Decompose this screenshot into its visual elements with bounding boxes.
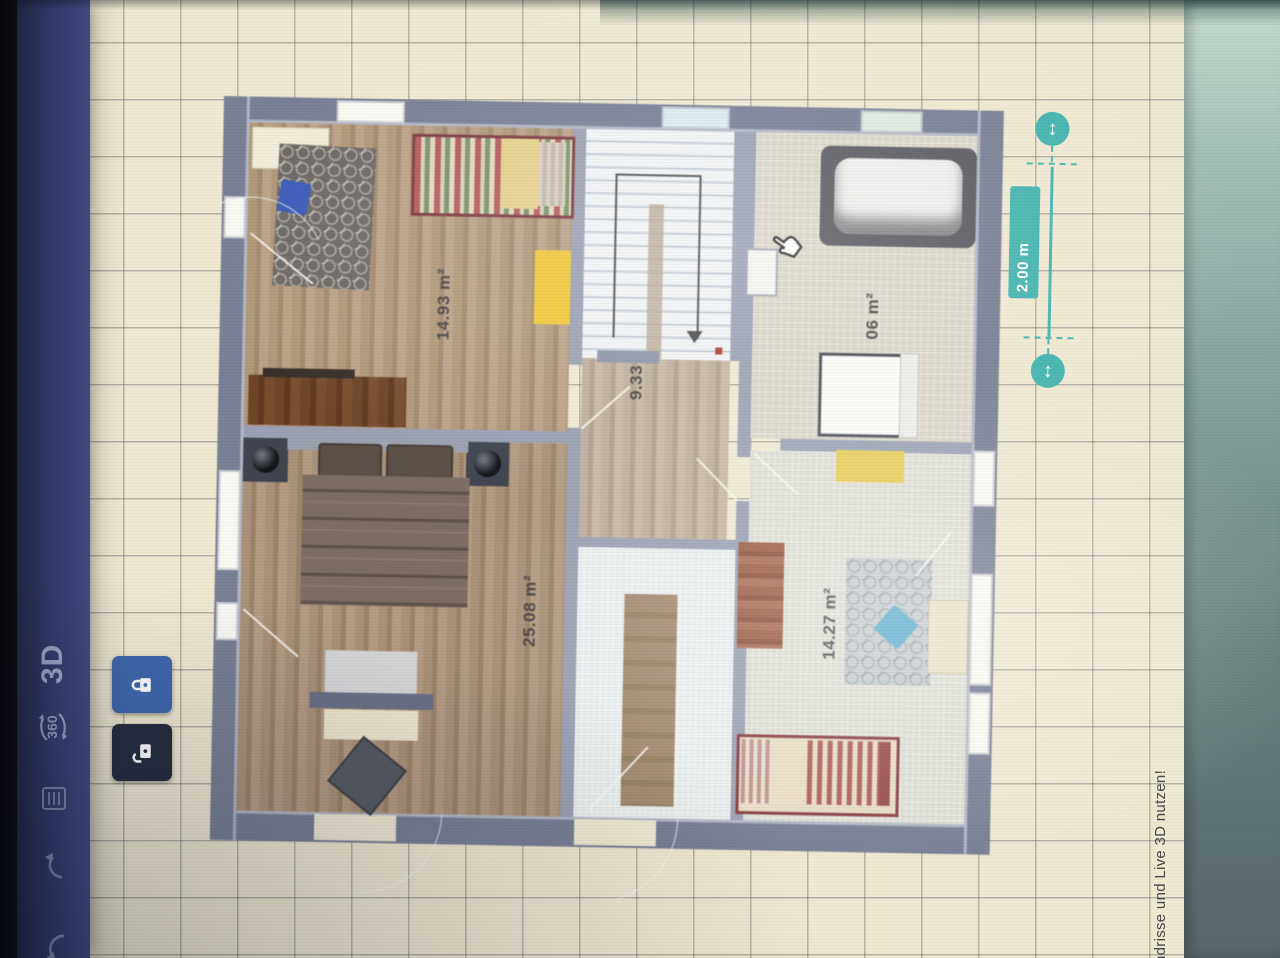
shelf-dark[interactable] <box>309 692 433 710</box>
blanket-yellow <box>500 138 539 209</box>
arrows-vertical-icon: ↕ <box>1047 117 1057 140</box>
window-top-1 <box>337 100 405 123</box>
stair-walkline <box>612 174 701 340</box>
dresser-red[interactable] <box>737 542 785 649</box>
bottom-toolbar: 3D 360 <box>15 0 90 958</box>
dimension-line <box>1047 167 1053 337</box>
wall-interior-right-1 <box>737 361 752 457</box>
bench-cream-right[interactable] <box>927 600 968 675</box>
arrows-vertical-icon: ↕ <box>1043 359 1053 382</box>
dimension-connector-top <box>1051 146 1053 162</box>
window-top-3 <box>860 110 922 133</box>
area-label-bathroom: 06 m² <box>863 292 884 339</box>
window-right-3 <box>968 692 991 754</box>
wall-stair-right <box>730 132 756 361</box>
bed-single-striped-top[interactable] <box>411 134 576 219</box>
sideboard-wood[interactable] <box>248 375 407 428</box>
radiator <box>899 353 920 438</box>
staircase[interactable] <box>582 129 734 361</box>
area-label-bedroom-main: 25.08 m² <box>520 575 541 647</box>
lamp-right <box>474 450 502 478</box>
window-right-1 <box>972 450 995 506</box>
bed2-stripes <box>807 740 880 805</box>
view-3d-button[interactable]: 3D <box>36 644 70 684</box>
floorplan: 14.93 m² 25.08 m² 9.33 06 m² 14.27 m² <box>210 96 1004 856</box>
shower[interactable] <box>818 352 904 438</box>
bed-single-striped-bottom[interactable] <box>735 734 900 817</box>
lock-closed-button[interactable] <box>112 656 172 713</box>
dimension-tick-top <box>1027 162 1077 165</box>
lamp-left <box>252 446 280 474</box>
redo-button[interactable] <box>36 848 72 884</box>
bed2-footboard <box>879 742 891 806</box>
sideboard-object <box>263 368 355 379</box>
list-button[interactable] <box>38 783 70 815</box>
lock-open-icon <box>127 738 157 768</box>
stair-direction-arrow-icon <box>686 331 702 343</box>
bathtub[interactable] <box>819 145 977 248</box>
window-top-2 <box>662 106 730 129</box>
bed-pillow-area <box>538 142 566 207</box>
status-message: ndrisse und Live 3D nutzen! <box>1152 770 1169 958</box>
dimension-handle-top[interactable]: ↕ <box>1035 112 1070 147</box>
nightstand-right[interactable] <box>466 442 510 487</box>
bed-double[interactable] <box>285 435 469 588</box>
window-left-2 <box>216 602 239 640</box>
dimension-connector-bottom <box>1047 339 1049 354</box>
pillow-light-blue <box>873 604 918 649</box>
stair-railing <box>597 350 659 363</box>
screen-edge-right <box>1184 0 1280 958</box>
lock-open-button[interactable] <box>112 724 172 781</box>
dimension-handle-bottom[interactable]: ↕ <box>1030 353 1065 388</box>
bed-blanket <box>300 475 469 608</box>
rug-light[interactable] <box>844 558 932 686</box>
screen-edge-top-thin <box>0 0 1280 10</box>
photo-edge-left <box>0 0 17 958</box>
desk-gray[interactable] <box>325 650 418 697</box>
dimension-label: 2.00 m <box>1014 242 1032 292</box>
area-label-bedroom-top-left: 14.93 m² <box>433 268 454 340</box>
undo-button[interactable] <box>34 928 74 958</box>
bed2-blanket-cream <box>771 740 808 805</box>
window-right-2 <box>969 573 993 685</box>
rotate-360-label: 360 <box>44 715 60 739</box>
lock-closed-icon <box>127 670 157 700</box>
window-left-1 <box>217 470 241 570</box>
mat-yellow-top[interactable] <box>534 250 571 325</box>
nightstand-left[interactable] <box>243 437 289 482</box>
bathtub-basin <box>834 158 963 236</box>
dimension-widget: ↕ 2.00 m ↕ <box>1002 100 1098 402</box>
photo-of-screen: 14.93 m² 25.08 m² 9.33 06 m² 14.27 m² ↕ … <box>0 0 1280 958</box>
mat-yellow-bath[interactable] <box>836 450 905 483</box>
room-floor-hallway <box>579 358 730 541</box>
rotate-360-button[interactable]: 360 <box>29 704 75 750</box>
area-label-stair-hall: 9.33 <box>626 365 647 400</box>
red-marker-dot <box>715 347 722 354</box>
bed2-pillow-area <box>741 739 772 804</box>
area-label-bedroom-bottom-right: 14.27 m² <box>819 588 840 660</box>
